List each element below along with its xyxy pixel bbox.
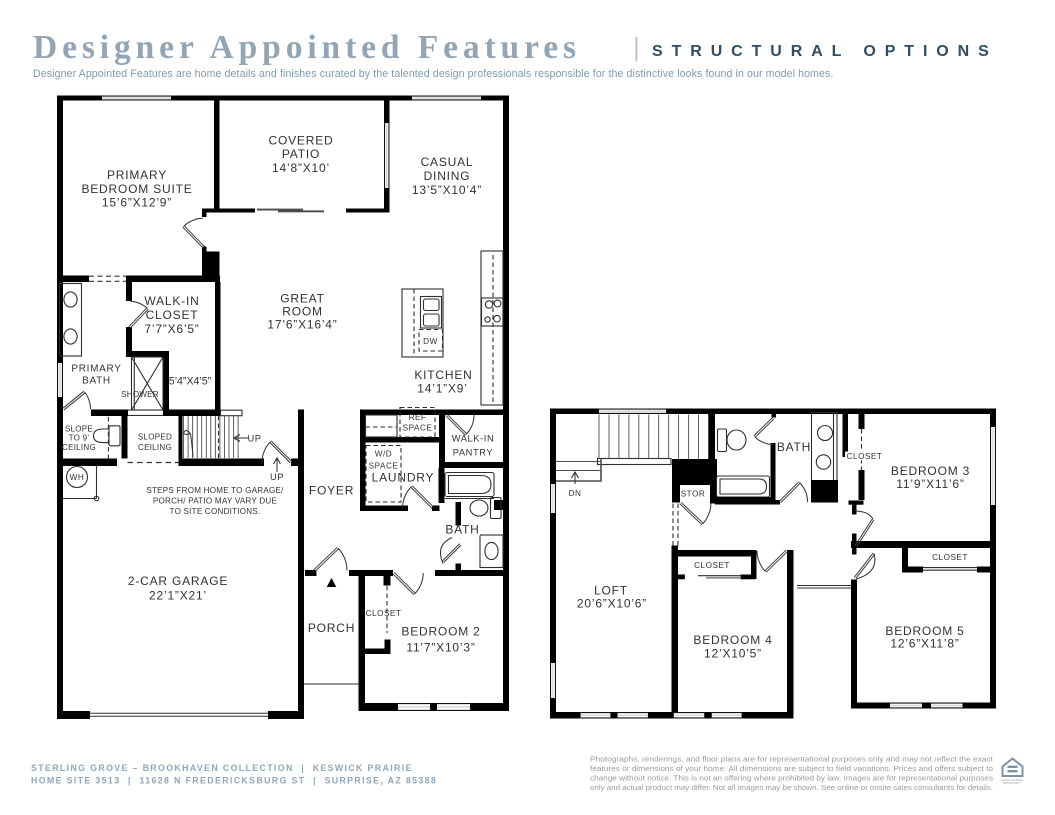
svg-text:STRUCTURAL OPTIONS: STRUCTURAL OPTIONS	[652, 43, 998, 60]
svg-text:17’6”X16’4”: 17’6”X16’4”	[267, 318, 337, 332]
svg-text:20’6”X10’6”: 20’6”X10’6”	[577, 597, 647, 611]
svg-text:PORCH/ PATIO MAY VARY DUE: PORCH/ PATIO MAY VARY DUE	[153, 497, 278, 506]
svg-text:CEILING: CEILING	[62, 443, 96, 452]
svg-text:TO 9’: TO 9’	[69, 434, 90, 443]
svg-text:Photographs, renderings, and f: Photographs, renderings, and floor plans…	[590, 755, 994, 764]
svg-text:change without notice. This is: change without notice. This is not an of…	[590, 774, 993, 783]
svg-text:FOYER: FOYER	[309, 484, 354, 498]
svg-text:STOR: STOR	[681, 490, 706, 499]
svg-text:2-CAR GARAGE: 2-CAR GARAGE	[128, 574, 228, 588]
svg-text:SLOPED: SLOPED	[138, 433, 172, 442]
svg-text:LAUNDRY: LAUNDRY	[372, 471, 435, 485]
svg-text:OPPORTUNITY: OPPORTUNITY	[1003, 781, 1022, 785]
svg-text:COVERED: COVERED	[269, 134, 334, 148]
svg-text:CLOSET: CLOSET	[694, 561, 730, 570]
svg-text:SPACE: SPACE	[403, 424, 433, 433]
svg-text:W/D: W/D	[375, 450, 392, 459]
svg-text:BEDROOM 3: BEDROOM 3	[891, 464, 970, 478]
svg-text:PORCH: PORCH	[308, 621, 355, 635]
svg-text:11’7”X10’3”: 11’7”X10’3”	[406, 641, 475, 655]
svg-text:14’1”X9’: 14’1”X9’	[417, 382, 467, 396]
svg-text:22’1”X21’: 22’1”X21’	[149, 589, 207, 603]
svg-text:SHOWER: SHOWER	[121, 390, 159, 399]
svg-text:12’X10’5”: 12’X10’5”	[704, 647, 762, 661]
svg-text:7’7”X6’5”: 7’7”X6’5”	[144, 322, 199, 336]
svg-text:5’4”X4’5”: 5’4”X4’5”	[169, 376, 212, 388]
svg-text:DN: DN	[569, 489, 582, 498]
svg-text:KITCHEN: KITCHEN	[414, 368, 472, 382]
svg-text:UP: UP	[247, 434, 261, 444]
svg-text:DINING: DINING	[424, 169, 471, 183]
svg-text:CLOSET: CLOSET	[146, 308, 199, 322]
svg-text:BEDROOM SUITE: BEDROOM SUITE	[81, 182, 192, 196]
svg-text:Designer Appointed Features: Designer Appointed Features	[33, 29, 581, 66]
svg-text:PATIO: PATIO	[282, 147, 320, 161]
svg-text:13’5”X10’4”: 13’5”X10’4”	[412, 183, 482, 197]
svg-text:15’6”X12’9”: 15’6”X12’9”	[102, 196, 172, 210]
svg-text:14’8”X10’: 14’8”X10’	[272, 161, 330, 175]
svg-text:WH: WH	[70, 473, 85, 482]
svg-text:CLOSET: CLOSET	[932, 553, 968, 562]
svg-text:12’6”X11’8”: 12’6”X11’8”	[890, 637, 959, 651]
svg-text:CEILING: CEILING	[138, 443, 172, 452]
svg-text:CLOSET: CLOSET	[366, 609, 402, 618]
svg-text:WALK-IN: WALK-IN	[144, 294, 199, 308]
svg-text:DW: DW	[423, 337, 438, 346]
svg-text:PANTRY: PANTRY	[453, 448, 493, 458]
svg-text:PRIMARY: PRIMARY	[71, 364, 121, 375]
svg-text:features or dimensions of your: features or dimensions of your home. All…	[590, 764, 993, 773]
svg-text:CASUAL: CASUAL	[421, 155, 474, 169]
svg-text:BEDROOM 2: BEDROOM 2	[401, 625, 480, 639]
svg-text:UP: UP	[270, 472, 284, 482]
svg-text:GREAT: GREAT	[280, 292, 324, 306]
svg-text:HOME SITE 3513 | 11628 N FRE: HOME SITE 3513 | 11628 N FREDERICKSBURG …	[31, 776, 437, 786]
svg-text:STERLING GROVE – BROOKHAVEN CO: STERLING GROVE – BROOKHAVEN COLLECTION |…	[31, 763, 413, 773]
svg-text:TO SITE CONDITIONS.: TO SITE CONDITIONS.	[170, 507, 261, 516]
svg-text:Designer Appointed Features ar: Designer Appointed Features are home det…	[33, 68, 833, 80]
svg-text:BATH: BATH	[777, 440, 811, 454]
svg-text:REF: REF	[409, 413, 427, 422]
svg-text:SLOPE: SLOPE	[65, 425, 93, 434]
svg-text:BATH: BATH	[445, 523, 479, 537]
svg-text:CLOSET: CLOSET	[847, 452, 883, 461]
svg-text:PRIMARY: PRIMARY	[107, 168, 167, 182]
svg-text:ROOM: ROOM	[282, 305, 323, 319]
svg-text:BATH: BATH	[82, 376, 111, 387]
svg-text:SPACE: SPACE	[369, 462, 399, 471]
svg-text:|: |	[633, 32, 640, 62]
svg-text:LOFT: LOFT	[594, 584, 628, 598]
svg-text:STEPS FROM HOME TO GARAGE/: STEPS FROM HOME TO GARAGE/	[146, 486, 284, 495]
svg-text:only and actual product may di: only and actual product may differ. Not …	[590, 783, 993, 792]
svg-text:WALK-IN: WALK-IN	[452, 434, 495, 444]
svg-text:BEDROOM 4: BEDROOM 4	[693, 633, 772, 647]
svg-text:11’9”X11’6”: 11’9”X11’6”	[896, 477, 964, 491]
